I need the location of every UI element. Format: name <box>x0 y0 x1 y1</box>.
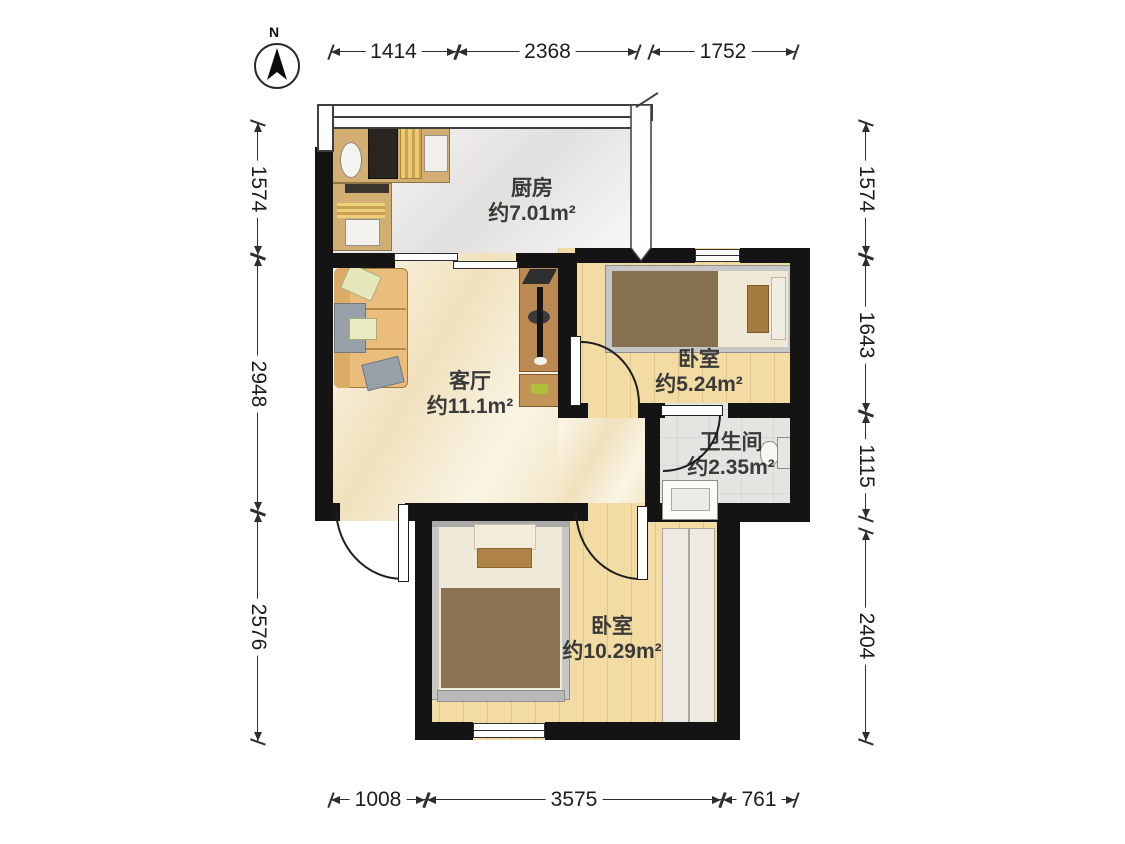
north-needle-icon <box>256 45 298 87</box>
compass-north-label: N <box>269 24 279 40</box>
wall-bedroom-bottom-east <box>717 503 740 740</box>
wall-right <box>790 248 810 522</box>
room-name: 卧室 <box>655 347 743 372</box>
cutting-board <box>400 128 422 179</box>
wall-bedroom-bottom-north <box>405 503 588 521</box>
room-area: 约10.29m² <box>562 639 661 664</box>
dim-bottom-2: 3575 <box>426 790 722 810</box>
dim-bottom-3: 761 <box>722 790 796 810</box>
dim-left-3: 2576 <box>248 512 268 742</box>
bed-pillow <box>474 524 536 550</box>
kitchen-sink <box>340 142 362 178</box>
wall-bedroom-bottom-south <box>545 722 740 740</box>
wall-bathroom-west <box>645 418 660 503</box>
dim-top-3: 1752 <box>650 42 796 62</box>
room-area: 约5.24m² <box>655 372 743 397</box>
room-area: 约2.35m² <box>687 455 775 480</box>
toilet-tank <box>777 437 791 469</box>
sofa-pillow <box>349 318 377 340</box>
dish-rack <box>345 184 389 193</box>
bedroom-top-door-leaf <box>570 336 581 406</box>
room-label-living: 客厅 约11.1m² <box>427 369 513 419</box>
bed-blanket <box>612 271 718 347</box>
dim-right-4: 2404 <box>856 530 876 742</box>
room-label-kitchen: 厨房 约7.01m² <box>488 176 576 226</box>
bedroom-bottom-door-leaf <box>637 506 648 580</box>
wardrobe-divider <box>688 528 690 724</box>
bed-blanket <box>441 588 560 688</box>
room-label-bedroom-bottom: 卧室 约10.29m² <box>562 614 661 664</box>
dim-bottom-1: 1008 <box>330 790 426 810</box>
wall-left <box>315 147 333 518</box>
room-name: 厨房 <box>488 176 576 201</box>
balcony-edge-band-left <box>317 104 334 152</box>
dim-top-1: 1414 <box>330 42 457 62</box>
sliding-door-panel <box>453 261 518 269</box>
tv <box>537 287 543 357</box>
stove <box>368 128 398 179</box>
bathroom-sink-basin <box>671 488 710 511</box>
kitchen-appliance <box>424 135 448 172</box>
washing-machine <box>345 219 380 246</box>
plant <box>531 384 548 394</box>
bathroom-door-leaf <box>661 405 723 416</box>
dim-left-2: 2948 <box>248 256 268 512</box>
bed-pillow <box>747 285 769 333</box>
bed-footboard <box>437 690 565 702</box>
room-label-bedroom-top: 卧室 约5.24m² <box>655 347 743 397</box>
wall-kitchen-living <box>315 253 395 268</box>
north-compass-icon <box>254 43 300 89</box>
dim-right-1: 1574 <box>856 122 876 256</box>
entry-door-leaf <box>398 504 409 582</box>
dim-left-1: 1574 <box>248 122 268 256</box>
wall-bedroom-bottom-south <box>415 722 473 740</box>
bed-pillow <box>477 548 532 568</box>
window-bedroom-top <box>695 249 740 262</box>
kitchen-mat <box>337 203 385 218</box>
entry-door-swing <box>335 508 403 580</box>
floor-plan-canvas: N <box>0 0 1125 844</box>
wall-bedroom-top-south <box>728 403 790 418</box>
balcony-edge-band-inner <box>329 116 641 129</box>
dim-top-2: 2368 <box>457 42 638 62</box>
wall-bedroom-bottom-west <box>415 503 432 740</box>
dim-right-2: 1643 <box>856 256 876 413</box>
sliding-door-panel <box>394 253 458 261</box>
bed-pillow <box>771 277 786 340</box>
room-name: 客厅 <box>427 369 513 394</box>
room-area: 约11.1m² <box>427 394 513 419</box>
window-bedroom-bottom <box>473 723 545 738</box>
tv-cabinet-item <box>534 357 547 365</box>
dim-right-3: 1115 <box>856 413 876 519</box>
room-area: 约7.01m² <box>488 201 576 226</box>
kitchen-open-edge <box>630 104 652 262</box>
room-name: 卧室 <box>562 614 661 639</box>
